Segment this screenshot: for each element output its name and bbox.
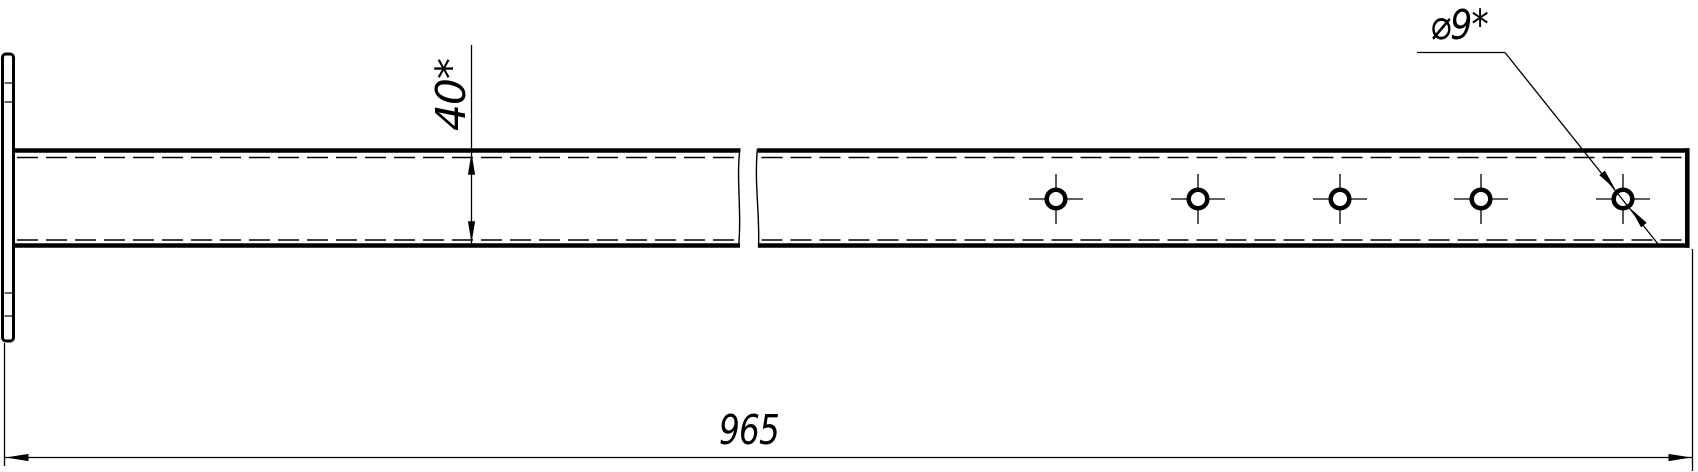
- length-dimension-label: 965: [719, 406, 779, 454]
- break-line: [756, 149, 758, 248]
- break-line: [739, 149, 741, 248]
- dim965-arrow-left: [6, 454, 29, 461]
- technical-drawing: 40* ⌀9* 965: [0, 0, 1698, 472]
- leader-arrow-lower: [1631, 209, 1647, 228]
- dim965-arrow-right: [1669, 454, 1692, 461]
- drawing-sheet: 40* ⌀9* 965: [0, 0, 1698, 472]
- diameter-callout-label: ⌀9*: [1430, 1, 1488, 49]
- hole-circle: [1047, 190, 1066, 209]
- hole-circle: [1189, 190, 1208, 209]
- hole-circle: [1472, 190, 1491, 209]
- hole-circle: [1331, 190, 1350, 209]
- width-dimension-label: 40*: [427, 58, 475, 131]
- dim40-arrow-up: [468, 153, 475, 175]
- geometry-layer: [3, 45, 1693, 471]
- leader-arrow-upper: [1599, 171, 1615, 190]
- end-plate-outline: [3, 54, 14, 341]
